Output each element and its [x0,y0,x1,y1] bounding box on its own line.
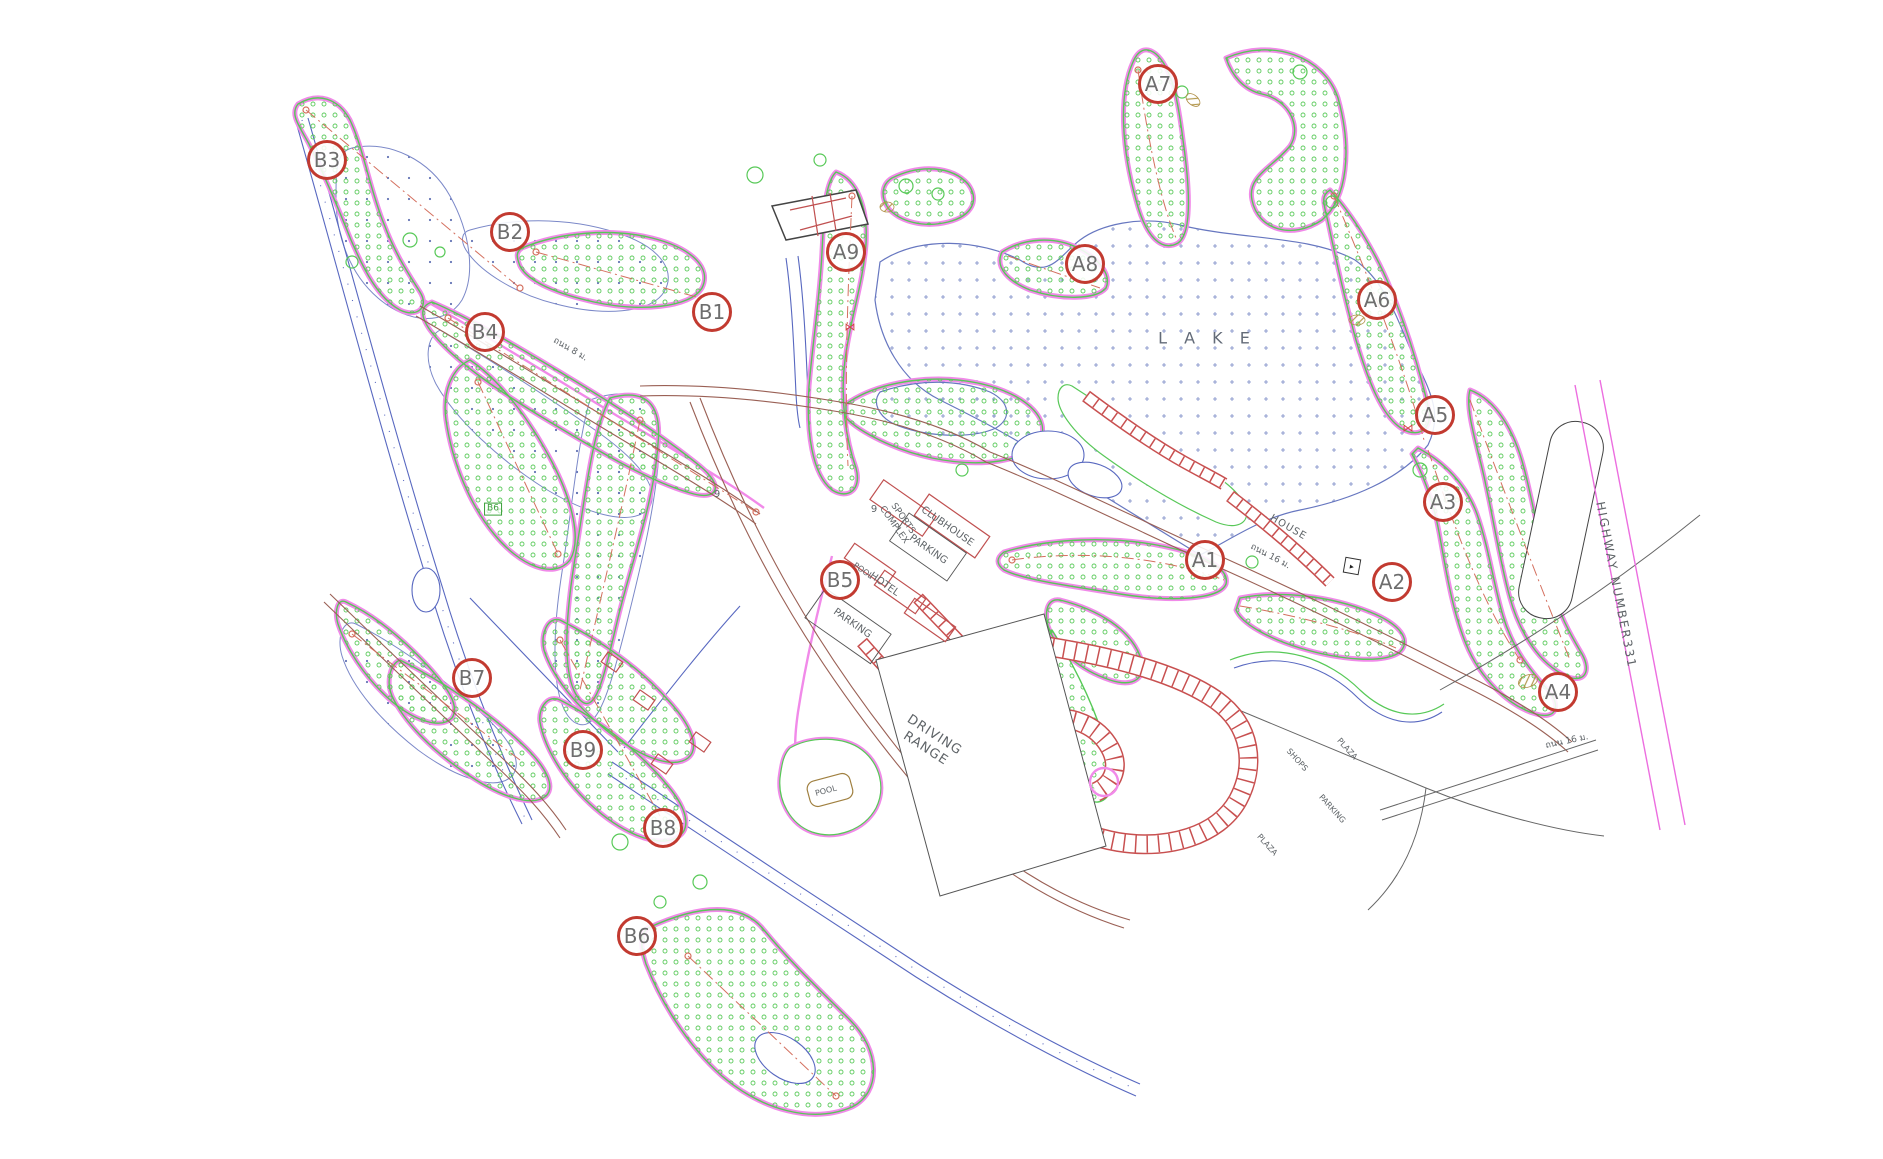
label-tee-b6: B6 [484,503,502,516]
label-plaza-2: PLAZA [1255,832,1279,858]
pump-station-icon: ▸ [1343,557,1362,576]
label-driving-range: DRIVING RANGE [895,712,964,772]
hole-marker-B4: B4 [465,312,505,352]
hole-marker-A7: A7 [1138,64,1178,104]
label-parking-plaza: PARKING [1317,793,1348,826]
label-shops: SHOPS [1284,747,1309,774]
label-road-16m-b: ถนน 16 ม. [1544,732,1589,752]
hole-marker-B2: B2 [490,212,530,252]
label-green-9-a: 9 [714,489,720,501]
label-highway: HIGHWAY NUMBER331 [1593,500,1640,669]
hole-marker-A1: A1 [1185,540,1225,580]
hole-marker-A4: A4 [1538,672,1578,712]
sluice-icon: ⋈ [1403,422,1414,435]
label-house: HOUSE [1268,513,1309,544]
label-pool-main: POOL [814,784,838,799]
label-road-16m-a: ถนน 16 ม. [1248,542,1292,572]
label-road-8m: ถนน 8 ม. [551,336,589,364]
label-plaza-1: PLAZA [1335,736,1359,762]
hole-marker-A2: A2 [1372,562,1412,602]
hole-marker-B6: B6 [617,916,657,956]
label-lake: L A K E [1158,328,1256,347]
hole-marker-A6: A6 [1357,280,1397,320]
golf-course-master-plan: A1A2A3A4A5A6A7A8A9B1B2B3B4B5B6B7B8B9L A … [0,0,1883,1159]
hole-marker-B3: B3 [307,140,347,180]
sluice-icon: ⋈ [845,321,856,334]
hole-marker-B8: B8 [643,808,683,848]
hole-marker-A3: A3 [1423,482,1463,522]
annotation-overlay: A1A2A3A4A5A6A7A8A9B1B2B3B4B5B6B7B8B9L A … [0,0,1883,1159]
hole-marker-A9: A9 [826,232,866,272]
hole-marker-B1: B1 [692,292,732,332]
hole-marker-B7: B7 [452,658,492,698]
hole-marker-B9: B9 [563,730,603,770]
hole-marker-A8: A8 [1065,244,1105,284]
hole-marker-A5: A5 [1415,395,1455,435]
label-green-9-b: 9 [871,504,877,516]
label-parking-hotel: PARKING [831,606,874,641]
label-parking-club: PARKING [907,532,950,567]
label-hotel: HOTEL [867,571,901,600]
